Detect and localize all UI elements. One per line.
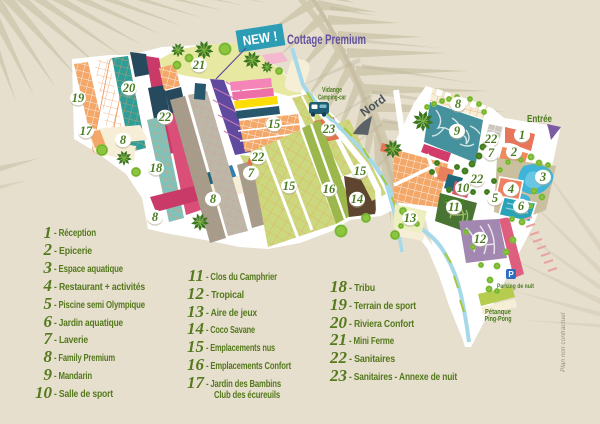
- svg-text:- Sanitaires: - Sanitaires: [349, 353, 395, 365]
- svg-text:- Jardin aquatique: - Jardin aquatique: [54, 317, 123, 329]
- svg-text:10: 10: [35, 383, 53, 402]
- svg-text:18: 18: [150, 161, 163, 175]
- svg-text:23: 23: [329, 366, 348, 385]
- svg-text:8: 8: [455, 97, 462, 111]
- svg-text:12: 12: [474, 232, 487, 246]
- svg-text:4: 4: [507, 182, 514, 196]
- svg-text:23: 23: [322, 122, 336, 136]
- svg-text:20: 20: [122, 81, 136, 95]
- svg-text:16: 16: [323, 182, 336, 196]
- svg-text:- Salle de sport: - Salle de sport: [54, 388, 114, 400]
- svg-text:Pétanque: Pétanque: [485, 309, 511, 316]
- svg-text:14: 14: [187, 319, 204, 338]
- svg-text:8: 8: [152, 210, 159, 224]
- svg-text:Ping-Pong: Ping-Pong: [485, 316, 512, 323]
- svg-text:15: 15: [283, 179, 296, 193]
- svg-text:8: 8: [210, 192, 217, 206]
- svg-text:- Piscine semi Olympique: - Piscine semi Olympique: [54, 299, 145, 311]
- svg-text:7: 7: [248, 166, 255, 180]
- svg-text:Parking de nuit: Parking de nuit: [497, 283, 535, 290]
- svg-text:Plan non contractuel: Plan non contractuel: [560, 312, 567, 372]
- svg-text:5: 5: [492, 191, 498, 205]
- svg-text:15: 15: [354, 164, 367, 178]
- svg-text:3: 3: [539, 170, 546, 184]
- svg-text:Cottage Premium: Cottage Premium: [287, 32, 366, 47]
- svg-text:2: 2: [43, 240, 53, 259]
- svg-text:16: 16: [187, 355, 205, 374]
- svg-text:8: 8: [44, 347, 53, 366]
- svg-text:9: 9: [44, 365, 53, 384]
- svg-text:21: 21: [192, 58, 206, 72]
- svg-text:1: 1: [519, 128, 525, 142]
- svg-text:Camping-car: Camping-car: [318, 93, 346, 102]
- svg-text:22: 22: [484, 132, 498, 146]
- svg-text:- Réception: - Réception: [54, 227, 96, 239]
- svg-text:12: 12: [187, 284, 205, 303]
- svg-text:Club des écureuils: Club des écureuils: [214, 389, 280, 401]
- svg-text:8: 8: [120, 133, 127, 147]
- svg-text:17: 17: [80, 124, 93, 138]
- svg-text:11: 11: [188, 266, 204, 285]
- svg-text:11: 11: [448, 200, 460, 214]
- svg-text:22: 22: [158, 110, 172, 124]
- svg-text:- Mini Ferme: - Mini Ferme: [349, 335, 394, 347]
- svg-text:- Riviera Confort: - Riviera Confort: [349, 318, 415, 330]
- svg-text:10: 10: [457, 181, 470, 195]
- svg-text:22: 22: [470, 172, 484, 186]
- svg-text:- Emplacements Confort: - Emplacements Confort: [206, 360, 292, 372]
- svg-text:13: 13: [404, 211, 417, 225]
- svg-text:- Mandarin: - Mandarin: [54, 370, 92, 382]
- svg-text:3: 3: [43, 258, 53, 277]
- svg-text:15: 15: [187, 337, 205, 356]
- svg-text:- Terrain de sport: - Terrain de sport: [349, 300, 417, 312]
- svg-text:7: 7: [488, 146, 495, 160]
- svg-text:- Emplacements nus: - Emplacements nus: [206, 342, 275, 354]
- svg-text:- Aire de jeux: - Aire de jeux: [206, 307, 257, 319]
- svg-text:19: 19: [330, 295, 348, 314]
- svg-text:2: 2: [510, 145, 517, 159]
- svg-text:P: P: [508, 270, 514, 279]
- svg-text:- Sanitaires - Annexe de nuit: - Sanitaires - Annexe de nuit: [349, 371, 458, 383]
- svg-text:- Laverie: - Laverie: [54, 334, 88, 346]
- svg-text:15: 15: [268, 117, 281, 131]
- svg-text:19: 19: [72, 91, 85, 105]
- svg-text:14: 14: [351, 192, 364, 206]
- svg-text:5: 5: [44, 294, 53, 313]
- svg-text:4: 4: [43, 276, 53, 295]
- svg-text:Entrée: Entrée: [527, 114, 552, 125]
- svg-text:22: 22: [329, 348, 348, 367]
- svg-text:21: 21: [329, 330, 347, 349]
- svg-text:- Clos du Camphrier: - Clos du Camphrier: [206, 271, 277, 283]
- svg-text:- Espace aquatique: - Espace aquatique: [54, 263, 123, 275]
- svg-text:- Epicerie: - Epicerie: [54, 245, 92, 257]
- svg-text:- Restaurant + activités: - Restaurant + activités: [54, 281, 145, 293]
- svg-text:17: 17: [187, 373, 206, 392]
- svg-text:22: 22: [251, 150, 265, 164]
- svg-text:6: 6: [518, 199, 525, 213]
- svg-text:- Tribu: - Tribu: [349, 282, 375, 294]
- svg-text:- Coco Savane: - Coco Savane: [206, 324, 255, 336]
- svg-text:18: 18: [330, 277, 348, 296]
- svg-text:- Family Premium: - Family Premium: [54, 352, 115, 364]
- svg-text:9: 9: [454, 124, 461, 138]
- svg-text:- Tropical: - Tropical: [206, 289, 244, 301]
